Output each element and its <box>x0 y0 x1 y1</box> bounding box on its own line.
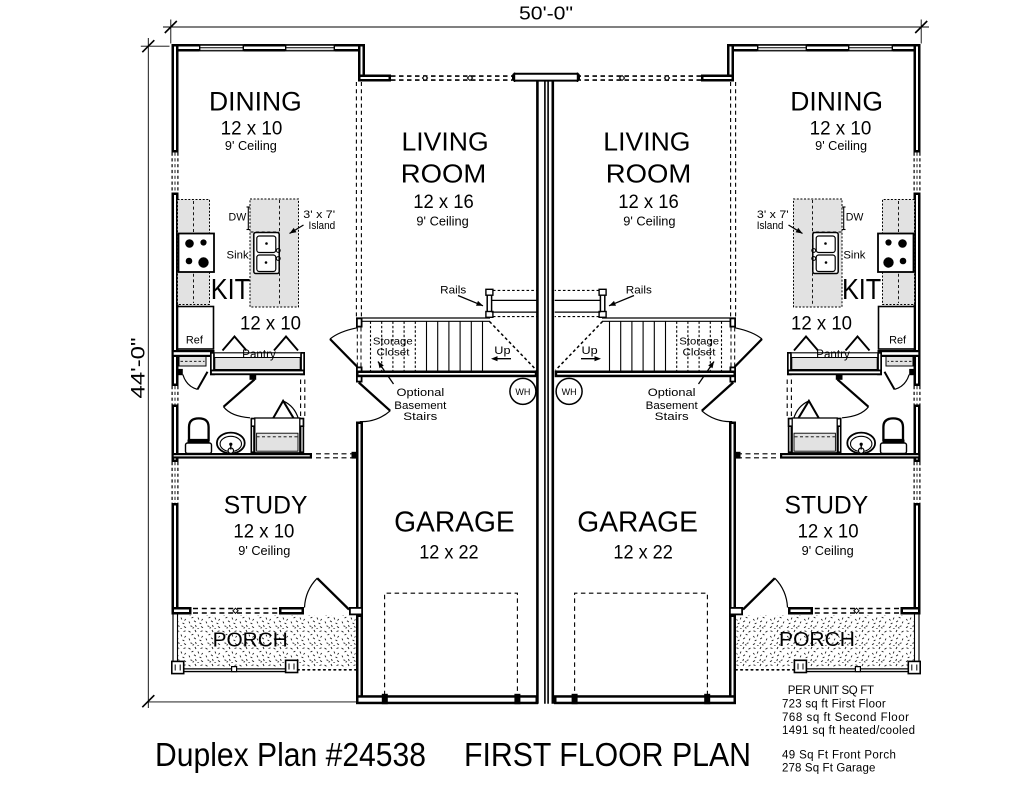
svg-text:Optional: Optional <box>397 387 445 399</box>
svg-text:Basement: Basement <box>646 400 698 412</box>
svg-text:WH: WH <box>515 387 530 398</box>
svg-text:Storage: Storage <box>373 337 413 348</box>
svg-text:50'-0": 50'-0" <box>519 4 573 24</box>
svg-text:723 sq ft First Floor: 723 sq ft First Floor <box>782 699 886 711</box>
svg-text:Island: Island <box>757 220 784 232</box>
svg-text:DW: DW <box>846 211 864 223</box>
svg-text:Rails: Rails <box>440 285 467 297</box>
svg-text:PORCH: PORCH <box>213 629 288 651</box>
svg-text:PER UNIT SQ FT: PER UNIT SQ FT <box>788 685 874 697</box>
svg-text:PORCH: PORCH <box>779 629 855 651</box>
svg-text:ROOM: ROOM <box>606 158 692 188</box>
svg-text:ROOM: ROOM <box>401 158 487 188</box>
svg-text:STUDY: STUDY <box>224 492 308 520</box>
svg-text:12 x 10: 12 x 10 <box>240 313 301 335</box>
svg-text:Closet: Closet <box>683 347 716 358</box>
svg-text:Closet: Closet <box>377 347 410 358</box>
svg-text:12 x 10: 12 x 10 <box>791 313 852 335</box>
svg-text:12 x 10: 12 x 10 <box>221 117 283 139</box>
svg-text:Up: Up <box>494 345 510 357</box>
svg-text:9' Ceiling: 9' Ceiling <box>623 214 675 228</box>
svg-text:Sink: Sink <box>843 249 866 261</box>
svg-text:1491 sq ft heated/cooled: 1491 sq ft heated/cooled <box>782 725 915 737</box>
svg-text:Duplex Plan #24538: Duplex Plan #24538 <box>155 736 426 773</box>
svg-text:DINING: DINING <box>790 86 883 116</box>
svg-text:WH: WH <box>562 387 577 398</box>
svg-text:Optional: Optional <box>648 387 696 399</box>
svg-text:Island: Island <box>309 220 336 232</box>
svg-text:KIT: KIT <box>842 274 882 306</box>
svg-text:Pantry: Pantry <box>816 349 850 361</box>
svg-text:12 x 16: 12 x 16 <box>413 191 474 213</box>
svg-text:STUDY: STUDY <box>785 492 869 520</box>
svg-text:Pantry: Pantry <box>242 349 276 361</box>
svg-text:278 Sq Ft Garage: 278 Sq Ft Garage <box>782 763 875 775</box>
svg-text:3' x 7': 3' x 7' <box>757 209 789 221</box>
svg-text:12 x 10: 12 x 10 <box>233 521 294 543</box>
svg-text:Stairs: Stairs <box>403 411 438 423</box>
svg-text:Ref: Ref <box>186 334 204 346</box>
svg-text:12 x 22: 12 x 22 <box>613 542 672 564</box>
svg-text:KIT: KIT <box>211 274 251 306</box>
svg-text:9' Ceiling: 9' Ceiling <box>802 544 854 558</box>
svg-text:49 Sq Ft Front Porch: 49 Sq Ft Front Porch <box>782 750 896 762</box>
svg-text:9' Ceiling: 9' Ceiling <box>815 139 867 153</box>
svg-text:Up: Up <box>582 345 598 357</box>
svg-text:3' x 7': 3' x 7' <box>303 209 335 221</box>
svg-text:Rails: Rails <box>626 285 653 297</box>
svg-text:Storage: Storage <box>679 337 719 348</box>
svg-text:9' Ceiling: 9' Ceiling <box>416 214 468 228</box>
svg-text:DINING: DINING <box>209 86 302 116</box>
svg-text:44'-0": 44'-0" <box>129 338 150 399</box>
svg-text:12 x 10: 12 x 10 <box>798 521 859 543</box>
svg-text:DW: DW <box>229 211 247 223</box>
svg-text:12 x 16: 12 x 16 <box>618 191 679 213</box>
svg-text:768 sq ft Second Floor: 768 sq ft Second Floor <box>782 712 909 724</box>
svg-text:Stairs: Stairs <box>655 411 690 423</box>
svg-text:Sink: Sink <box>227 249 250 261</box>
svg-text:12 x 10: 12 x 10 <box>810 117 872 139</box>
svg-text:12 x 22: 12 x 22 <box>419 542 478 564</box>
svg-text:9' Ceiling: 9' Ceiling <box>225 139 277 153</box>
svg-text:Ref: Ref <box>889 334 907 346</box>
svg-text:GARAGE: GARAGE <box>577 506 698 538</box>
svg-text:9' Ceiling: 9' Ceiling <box>238 544 290 558</box>
svg-text:GARAGE: GARAGE <box>394 506 515 538</box>
svg-text:LIVING: LIVING <box>402 127 489 157</box>
svg-text:FIRST FLOOR PLAN: FIRST FLOOR PLAN <box>464 736 751 773</box>
svg-text:LIVING: LIVING <box>603 127 690 157</box>
svg-text:Basement: Basement <box>394 400 446 412</box>
